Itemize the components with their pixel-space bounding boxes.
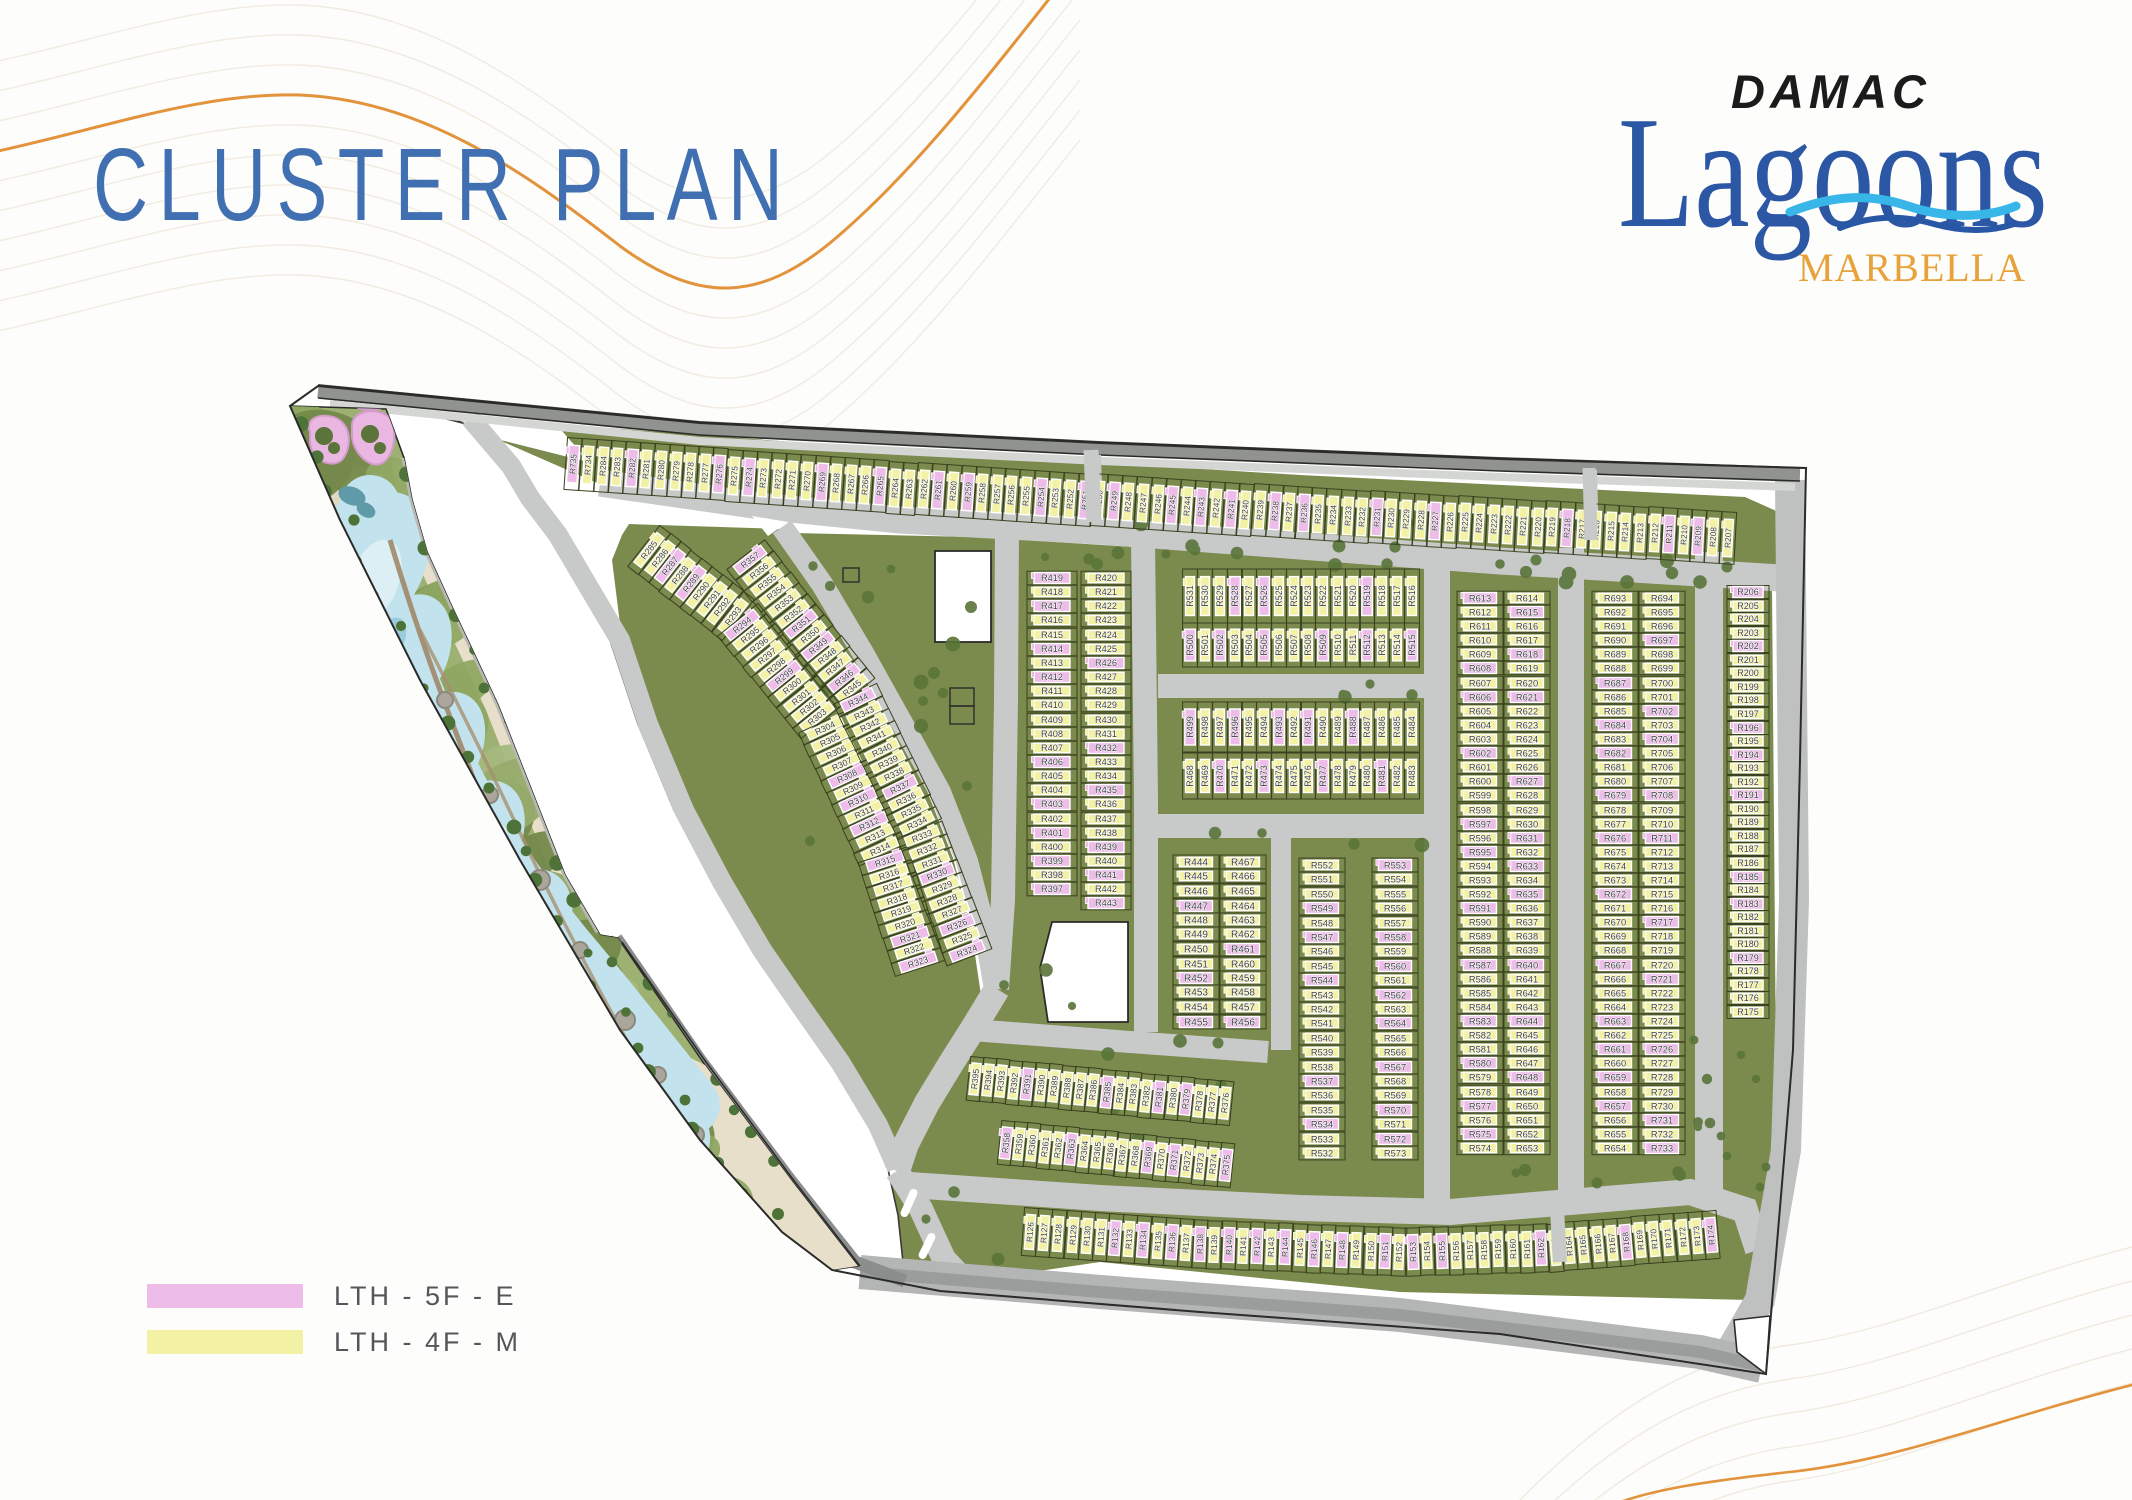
svg-text:R585: R585 bbox=[1469, 988, 1491, 998]
svg-text:R278: R278 bbox=[684, 461, 695, 482]
svg-text:R228: R228 bbox=[1415, 509, 1426, 530]
svg-text:R704: R704 bbox=[1651, 734, 1673, 744]
svg-text:R409: R409 bbox=[1041, 715, 1063, 725]
svg-text:R718: R718 bbox=[1651, 931, 1673, 941]
svg-text:R631: R631 bbox=[1516, 833, 1538, 843]
svg-text:R421: R421 bbox=[1095, 587, 1117, 597]
svg-text:R612: R612 bbox=[1469, 607, 1491, 617]
svg-text:R470: R470 bbox=[1215, 765, 1225, 787]
svg-text:R622: R622 bbox=[1516, 706, 1538, 716]
svg-text:R481: R481 bbox=[1377, 765, 1387, 787]
svg-text:R611: R611 bbox=[1469, 621, 1491, 631]
svg-text:R538: R538 bbox=[1311, 1062, 1333, 1072]
svg-text:R181: R181 bbox=[1737, 926, 1759, 936]
svg-text:R221: R221 bbox=[1517, 515, 1528, 536]
svg-text:R492: R492 bbox=[1289, 716, 1299, 738]
svg-text:R136: R136 bbox=[1166, 1231, 1177, 1252]
svg-text:R477: R477 bbox=[1318, 765, 1328, 787]
svg-text:R277: R277 bbox=[699, 462, 710, 483]
svg-text:R518: R518 bbox=[1377, 585, 1387, 607]
svg-text:R713: R713 bbox=[1651, 861, 1673, 871]
svg-text:R141: R141 bbox=[1238, 1235, 1249, 1256]
svg-text:R676: R676 bbox=[1604, 833, 1626, 843]
svg-text:R144: R144 bbox=[1280, 1236, 1291, 1257]
svg-text:R133: R133 bbox=[1123, 1228, 1134, 1249]
svg-text:R623: R623 bbox=[1516, 720, 1538, 730]
svg-text:R697: R697 bbox=[1651, 635, 1673, 645]
svg-text:R473: R473 bbox=[1259, 765, 1269, 787]
svg-text:R613: R613 bbox=[1469, 593, 1491, 603]
svg-text:R733: R733 bbox=[1651, 1143, 1673, 1153]
svg-text:R584: R584 bbox=[1469, 1002, 1491, 1012]
svg-text:R467: R467 bbox=[1231, 858, 1255, 869]
svg-text:R661: R661 bbox=[1604, 1044, 1626, 1054]
svg-text:R558: R558 bbox=[1384, 932, 1406, 942]
svg-text:R574: R574 bbox=[1469, 1143, 1491, 1153]
svg-text:R677: R677 bbox=[1604, 819, 1626, 829]
svg-text:R569: R569 bbox=[1384, 1090, 1406, 1100]
svg-text:R264: R264 bbox=[889, 477, 900, 498]
svg-text:R683: R683 bbox=[1604, 734, 1626, 744]
svg-text:R628: R628 bbox=[1516, 790, 1538, 800]
svg-text:R148: R148 bbox=[1337, 1239, 1348, 1260]
svg-text:R709: R709 bbox=[1651, 805, 1673, 815]
svg-text:R447: R447 bbox=[1184, 902, 1208, 913]
svg-text:R138: R138 bbox=[1195, 1233, 1206, 1254]
svg-text:R455: R455 bbox=[1184, 1018, 1208, 1029]
svg-text:R721: R721 bbox=[1651, 974, 1673, 984]
svg-text:R436: R436 bbox=[1095, 799, 1117, 809]
svg-text:R723: R723 bbox=[1651, 1002, 1673, 1012]
svg-text:R532: R532 bbox=[1311, 1148, 1333, 1158]
svg-text:R732: R732 bbox=[1651, 1129, 1673, 1139]
svg-text:R225: R225 bbox=[1459, 511, 1470, 532]
svg-text:R205: R205 bbox=[1737, 601, 1759, 611]
svg-text:R233: R233 bbox=[1342, 505, 1353, 526]
svg-text:R620: R620 bbox=[1516, 678, 1538, 688]
svg-text:R695: R695 bbox=[1651, 607, 1673, 617]
svg-text:R475: R475 bbox=[1289, 765, 1299, 787]
svg-text:R521: R521 bbox=[1333, 585, 1343, 607]
svg-text:R498: R498 bbox=[1200, 716, 1210, 738]
svg-text:R210: R210 bbox=[1678, 524, 1689, 545]
svg-text:R560: R560 bbox=[1384, 961, 1406, 971]
svg-text:R147: R147 bbox=[1323, 1238, 1334, 1259]
svg-text:R270: R270 bbox=[801, 470, 812, 491]
svg-text:R169: R169 bbox=[1634, 1229, 1646, 1250]
svg-text:R429: R429 bbox=[1095, 700, 1117, 710]
svg-text:R207: R207 bbox=[1722, 527, 1733, 548]
svg-text:R127: R127 bbox=[1038, 1222, 1049, 1243]
svg-text:R656: R656 bbox=[1604, 1115, 1626, 1125]
svg-text:R592: R592 bbox=[1469, 889, 1491, 899]
svg-text:R510: R510 bbox=[1333, 634, 1343, 656]
svg-text:R610: R610 bbox=[1469, 635, 1491, 645]
svg-text:R146: R146 bbox=[1309, 1238, 1320, 1259]
svg-text:R649: R649 bbox=[1516, 1087, 1538, 1097]
svg-text:R563: R563 bbox=[1384, 1004, 1406, 1014]
svg-text:R630: R630 bbox=[1516, 819, 1538, 829]
svg-text:R282: R282 bbox=[626, 457, 637, 478]
svg-text:R150: R150 bbox=[1366, 1240, 1377, 1261]
svg-text:R230: R230 bbox=[1385, 507, 1396, 528]
svg-text:R655: R655 bbox=[1604, 1129, 1626, 1139]
svg-text:R405: R405 bbox=[1041, 771, 1063, 781]
svg-text:R635: R635 bbox=[1516, 889, 1538, 899]
svg-text:R554: R554 bbox=[1384, 874, 1406, 884]
svg-text:R489: R489 bbox=[1333, 716, 1343, 738]
svg-text:R253: R253 bbox=[1049, 487, 1060, 508]
svg-text:R555: R555 bbox=[1384, 889, 1406, 899]
svg-text:R130: R130 bbox=[1081, 1225, 1092, 1246]
svg-text:R273: R273 bbox=[757, 467, 768, 488]
svg-text:R632: R632 bbox=[1516, 847, 1538, 857]
svg-text:R547: R547 bbox=[1311, 932, 1333, 942]
svg-text:R522: R522 bbox=[1318, 585, 1328, 607]
svg-text:R177: R177 bbox=[1737, 980, 1759, 990]
svg-text:R245: R245 bbox=[1166, 494, 1177, 515]
svg-text:R257: R257 bbox=[991, 483, 1002, 504]
svg-text:R145: R145 bbox=[1295, 1237, 1306, 1258]
svg-text:R576: R576 bbox=[1469, 1115, 1491, 1125]
svg-text:R281: R281 bbox=[640, 458, 651, 479]
svg-text:R167: R167 bbox=[1606, 1232, 1618, 1253]
svg-text:R472: R472 bbox=[1244, 765, 1254, 787]
svg-text:R734: R734 bbox=[582, 454, 593, 475]
svg-text:R243: R243 bbox=[1195, 496, 1206, 517]
svg-text:R626: R626 bbox=[1516, 762, 1538, 772]
svg-text:R581: R581 bbox=[1469, 1044, 1491, 1054]
svg-text:R634: R634 bbox=[1516, 875, 1538, 885]
svg-text:R575: R575 bbox=[1469, 1129, 1491, 1139]
svg-text:R627: R627 bbox=[1516, 776, 1538, 786]
svg-text:R199: R199 bbox=[1737, 682, 1759, 692]
svg-text:R153: R153 bbox=[1408, 1241, 1419, 1262]
svg-text:R185: R185 bbox=[1737, 872, 1759, 882]
svg-text:R176: R176 bbox=[1737, 993, 1759, 1003]
svg-text:R258: R258 bbox=[976, 482, 987, 503]
svg-text:R535: R535 bbox=[1311, 1105, 1333, 1115]
svg-text:R456: R456 bbox=[1231, 1018, 1255, 1029]
svg-text:R596: R596 bbox=[1469, 833, 1491, 843]
svg-text:R218: R218 bbox=[1561, 517, 1572, 538]
svg-text:R465: R465 bbox=[1231, 887, 1255, 898]
svg-text:R452: R452 bbox=[1184, 974, 1208, 985]
svg-text:R537: R537 bbox=[1311, 1076, 1333, 1086]
svg-text:R422: R422 bbox=[1095, 601, 1117, 611]
svg-text:R523: R523 bbox=[1303, 585, 1313, 607]
svg-text:R708: R708 bbox=[1651, 790, 1673, 800]
svg-text:R688: R688 bbox=[1604, 663, 1626, 673]
svg-text:R665: R665 bbox=[1604, 988, 1626, 998]
svg-text:R249: R249 bbox=[1108, 490, 1119, 511]
svg-text:R684: R684 bbox=[1604, 720, 1626, 730]
svg-text:R696: R696 bbox=[1651, 621, 1673, 631]
svg-text:R536: R536 bbox=[1311, 1090, 1333, 1100]
svg-text:R485: R485 bbox=[1392, 716, 1402, 738]
svg-text:R526: R526 bbox=[1259, 585, 1269, 607]
svg-text:R188: R188 bbox=[1737, 831, 1759, 841]
svg-text:R735: R735 bbox=[567, 453, 578, 474]
svg-text:R232: R232 bbox=[1356, 506, 1367, 527]
svg-text:R512: R512 bbox=[1362, 634, 1372, 656]
svg-text:R212: R212 bbox=[1649, 522, 1660, 543]
svg-text:R152: R152 bbox=[1394, 1241, 1405, 1262]
svg-text:R505: R505 bbox=[1259, 634, 1269, 656]
svg-text:R668: R668 bbox=[1604, 945, 1626, 955]
svg-text:R189: R189 bbox=[1737, 817, 1759, 827]
svg-text:R503: R503 bbox=[1230, 634, 1240, 656]
svg-text:R469: R469 bbox=[1200, 765, 1210, 787]
svg-text:R428: R428 bbox=[1095, 686, 1117, 696]
svg-text:R594: R594 bbox=[1469, 861, 1491, 871]
svg-text:R463: R463 bbox=[1231, 916, 1255, 927]
svg-text:R483: R483 bbox=[1407, 765, 1417, 787]
svg-text:R544: R544 bbox=[1311, 975, 1333, 985]
svg-text:MARBELLA: MARBELLA bbox=[1798, 245, 2026, 290]
svg-text:R517: R517 bbox=[1392, 585, 1402, 607]
svg-text:R491: R491 bbox=[1303, 716, 1313, 738]
svg-text:R486: R486 bbox=[1377, 716, 1387, 738]
svg-text:R730: R730 bbox=[1651, 1101, 1673, 1111]
svg-text:R591: R591 bbox=[1469, 903, 1491, 913]
svg-text:R417: R417 bbox=[1041, 601, 1063, 611]
svg-text:R511: R511 bbox=[1348, 635, 1358, 656]
svg-text:R254: R254 bbox=[1035, 486, 1046, 507]
svg-text:R272: R272 bbox=[772, 468, 783, 489]
svg-text:R479: R479 bbox=[1348, 765, 1358, 787]
svg-text:R561: R561 bbox=[1384, 975, 1406, 985]
svg-text:R182: R182 bbox=[1737, 912, 1759, 922]
svg-text:R183: R183 bbox=[1737, 899, 1759, 909]
svg-text:R690: R690 bbox=[1604, 635, 1626, 645]
svg-text:R702: R702 bbox=[1651, 706, 1673, 716]
svg-text:R531: R531 bbox=[1185, 585, 1195, 607]
svg-text:R442: R442 bbox=[1095, 884, 1117, 894]
svg-text:R184: R184 bbox=[1737, 885, 1759, 895]
svg-text:R412: R412 bbox=[1041, 672, 1063, 682]
svg-text:R608: R608 bbox=[1469, 663, 1491, 673]
svg-text:R213: R213 bbox=[1634, 522, 1645, 543]
svg-text:R545: R545 bbox=[1311, 961, 1333, 971]
svg-text:R140: R140 bbox=[1224, 1234, 1235, 1255]
svg-text:R413: R413 bbox=[1041, 658, 1063, 668]
svg-text:R209: R209 bbox=[1692, 525, 1703, 546]
svg-text:R685: R685 bbox=[1604, 706, 1626, 716]
svg-text:R397: R397 bbox=[1041, 884, 1063, 894]
svg-text:R573: R573 bbox=[1384, 1148, 1406, 1158]
svg-text:R650: R650 bbox=[1516, 1101, 1538, 1111]
svg-text:R603: R603 bbox=[1469, 734, 1491, 744]
svg-text:R227: R227 bbox=[1429, 510, 1440, 531]
svg-text:R180: R180 bbox=[1737, 939, 1759, 949]
svg-text:R193: R193 bbox=[1737, 763, 1759, 773]
svg-text:R190: R190 bbox=[1737, 804, 1759, 814]
svg-text:R284: R284 bbox=[597, 455, 608, 476]
svg-text:R404: R404 bbox=[1041, 785, 1063, 795]
svg-text:R636: R636 bbox=[1516, 903, 1538, 913]
svg-text:R478: R478 bbox=[1333, 765, 1343, 787]
svg-text:R638: R638 bbox=[1516, 931, 1538, 941]
svg-text:R261: R261 bbox=[932, 479, 943, 500]
svg-text:R514: R514 bbox=[1392, 634, 1402, 656]
svg-text:R134: R134 bbox=[1137, 1229, 1148, 1250]
svg-text:R580: R580 bbox=[1469, 1058, 1491, 1068]
svg-text:R710: R710 bbox=[1651, 819, 1673, 829]
svg-text:R548: R548 bbox=[1311, 918, 1333, 928]
svg-text:R540: R540 bbox=[1311, 1033, 1333, 1043]
svg-text:R530: R530 bbox=[1200, 585, 1210, 607]
svg-text:R416: R416 bbox=[1041, 615, 1063, 625]
svg-text:R170: R170 bbox=[1648, 1228, 1660, 1249]
svg-text:R615: R615 bbox=[1516, 607, 1538, 617]
svg-text:R625: R625 bbox=[1516, 748, 1538, 758]
svg-text:R431: R431 bbox=[1095, 729, 1117, 739]
svg-text:R400: R400 bbox=[1041, 842, 1063, 852]
svg-text:R441: R441 bbox=[1095, 870, 1117, 880]
svg-text:R568: R568 bbox=[1384, 1076, 1406, 1086]
svg-text:R198: R198 bbox=[1737, 695, 1759, 705]
svg-text:R583: R583 bbox=[1469, 1016, 1491, 1026]
svg-text:R407: R407 bbox=[1041, 743, 1063, 753]
svg-text:R590: R590 bbox=[1469, 917, 1491, 927]
svg-text:R426: R426 bbox=[1095, 658, 1117, 668]
svg-text:R222: R222 bbox=[1502, 514, 1513, 535]
svg-text:R445: R445 bbox=[1184, 872, 1208, 883]
svg-text:R707: R707 bbox=[1651, 776, 1673, 786]
svg-text:R424: R424 bbox=[1095, 630, 1117, 640]
svg-text:CLUSTER PLAN: CLUSTER PLAN bbox=[93, 128, 793, 243]
svg-text:R194: R194 bbox=[1737, 750, 1759, 760]
svg-text:R570: R570 bbox=[1384, 1105, 1406, 1115]
svg-text:R231: R231 bbox=[1371, 506, 1382, 527]
svg-text:R266: R266 bbox=[859, 474, 870, 495]
svg-text:R241: R241 bbox=[1225, 498, 1236, 519]
svg-text:R196: R196 bbox=[1737, 723, 1759, 733]
svg-text:R666: R666 bbox=[1604, 974, 1626, 984]
svg-text:R609: R609 bbox=[1469, 649, 1491, 659]
svg-text:R500: R500 bbox=[1185, 634, 1195, 656]
svg-text:R457: R457 bbox=[1231, 1003, 1255, 1014]
svg-text:R187: R187 bbox=[1737, 844, 1759, 854]
svg-text:R159: R159 bbox=[1493, 1238, 1504, 1259]
svg-text:R466: R466 bbox=[1231, 872, 1255, 883]
svg-text:R262: R262 bbox=[918, 478, 929, 499]
svg-text:R549: R549 bbox=[1311, 903, 1333, 913]
svg-text:R678: R678 bbox=[1604, 805, 1626, 815]
svg-text:R507: R507 bbox=[1289, 634, 1299, 656]
svg-text:R129: R129 bbox=[1067, 1224, 1078, 1245]
svg-text:R279: R279 bbox=[670, 460, 681, 481]
svg-text:R509: R509 bbox=[1318, 634, 1328, 656]
svg-text:R543: R543 bbox=[1311, 990, 1333, 1000]
svg-text:R439: R439 bbox=[1095, 842, 1117, 852]
svg-text:R686: R686 bbox=[1604, 692, 1626, 702]
svg-text:R487: R487 bbox=[1362, 716, 1372, 738]
svg-text:R524: R524 bbox=[1289, 585, 1299, 607]
svg-text:R419: R419 bbox=[1041, 573, 1063, 583]
svg-text:R614: R614 bbox=[1516, 593, 1538, 603]
svg-text:R644: R644 bbox=[1516, 1016, 1538, 1026]
svg-text:R516: R516 bbox=[1407, 585, 1417, 607]
svg-text:R450: R450 bbox=[1184, 945, 1208, 956]
svg-text:R471: R471 bbox=[1230, 765, 1240, 787]
svg-text:R705: R705 bbox=[1651, 748, 1673, 758]
svg-text:R720: R720 bbox=[1651, 960, 1673, 970]
svg-text:R714: R714 bbox=[1651, 875, 1673, 885]
svg-text:R418: R418 bbox=[1041, 587, 1063, 597]
svg-text:R432: R432 bbox=[1095, 743, 1117, 753]
svg-text:R587: R587 bbox=[1469, 960, 1491, 970]
svg-text:R711: R711 bbox=[1651, 833, 1673, 843]
svg-text:R490: R490 bbox=[1318, 716, 1328, 738]
svg-text:R682: R682 bbox=[1604, 748, 1626, 758]
svg-text:R161: R161 bbox=[1522, 1238, 1533, 1259]
svg-text:R425: R425 bbox=[1095, 644, 1117, 654]
svg-text:R679: R679 bbox=[1604, 790, 1626, 800]
svg-text:R252: R252 bbox=[1064, 488, 1075, 509]
svg-text:R504: R504 bbox=[1244, 634, 1254, 656]
svg-text:R618: R618 bbox=[1516, 649, 1538, 659]
svg-text:R158: R158 bbox=[1479, 1239, 1490, 1260]
svg-text:R657: R657 bbox=[1604, 1101, 1626, 1111]
svg-text:R519: R519 bbox=[1362, 585, 1372, 607]
svg-text:R446: R446 bbox=[1184, 887, 1208, 898]
svg-text:R186: R186 bbox=[1737, 858, 1759, 868]
svg-text:R427: R427 bbox=[1095, 672, 1117, 682]
svg-text:R135: R135 bbox=[1152, 1230, 1163, 1251]
svg-text:R689: R689 bbox=[1604, 649, 1626, 659]
svg-text:R242: R242 bbox=[1210, 497, 1221, 518]
svg-text:R275: R275 bbox=[728, 465, 739, 486]
svg-text:R639: R639 bbox=[1516, 945, 1538, 955]
svg-text:R269: R269 bbox=[816, 471, 827, 492]
svg-text:R660: R660 bbox=[1604, 1058, 1626, 1068]
svg-text:R640: R640 bbox=[1516, 960, 1538, 970]
svg-text:R645: R645 bbox=[1516, 1030, 1538, 1040]
svg-text:R722: R722 bbox=[1651, 988, 1673, 998]
svg-text:R461: R461 bbox=[1231, 945, 1255, 956]
svg-text:R235: R235 bbox=[1312, 503, 1323, 524]
svg-text:R430: R430 bbox=[1095, 715, 1117, 725]
svg-text:R202: R202 bbox=[1737, 641, 1759, 651]
svg-text:R502: R502 bbox=[1215, 634, 1225, 656]
svg-text:R166: R166 bbox=[1592, 1233, 1604, 1254]
svg-text:R256: R256 bbox=[1005, 484, 1016, 505]
svg-text:R410: R410 bbox=[1041, 700, 1063, 710]
svg-text:R220: R220 bbox=[1532, 516, 1543, 537]
svg-text:R263: R263 bbox=[903, 478, 914, 499]
svg-text:R716: R716 bbox=[1651, 903, 1673, 913]
svg-text:R155: R155 bbox=[1437, 1240, 1448, 1261]
svg-text:R415: R415 bbox=[1041, 630, 1063, 640]
svg-text:R567: R567 bbox=[1384, 1062, 1406, 1072]
svg-text:R539: R539 bbox=[1311, 1047, 1333, 1057]
svg-text:R671: R671 bbox=[1604, 903, 1626, 913]
svg-text:R715: R715 bbox=[1651, 889, 1673, 899]
svg-text:R234: R234 bbox=[1327, 504, 1338, 525]
svg-text:R646: R646 bbox=[1516, 1044, 1538, 1054]
svg-text:R698: R698 bbox=[1651, 649, 1673, 659]
svg-text:R667: R667 bbox=[1604, 960, 1626, 970]
svg-text:R542: R542 bbox=[1311, 1004, 1333, 1014]
svg-text:R719: R719 bbox=[1651, 945, 1673, 955]
svg-text:R717: R717 bbox=[1651, 917, 1673, 927]
svg-text:R268: R268 bbox=[830, 472, 841, 493]
svg-text:R617: R617 bbox=[1516, 635, 1538, 645]
svg-text:R669: R669 bbox=[1604, 931, 1626, 941]
svg-text:R497: R497 bbox=[1215, 716, 1225, 738]
